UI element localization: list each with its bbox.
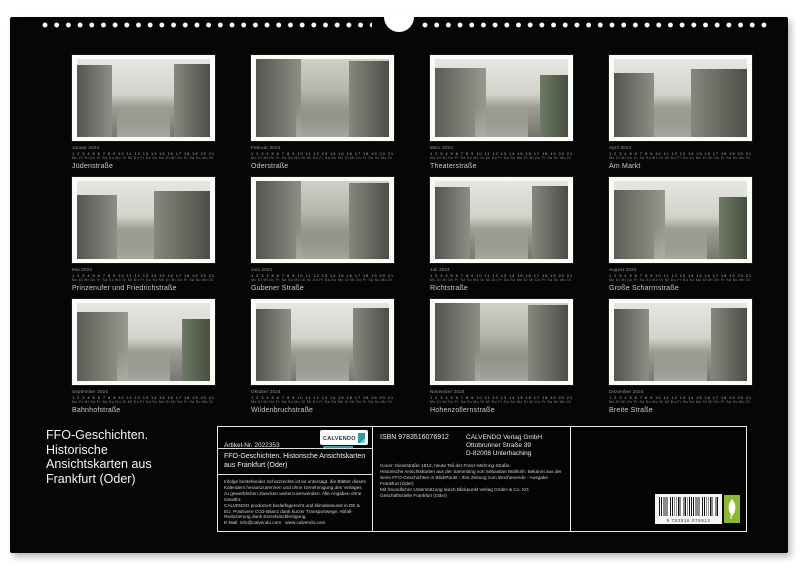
street-shape (117, 350, 170, 381)
postcard-thumbnail (72, 299, 215, 385)
barcode-number: 9 783516 076912 (655, 518, 722, 523)
postcard-caption: Oderstraße (251, 163, 394, 170)
hanger-notch (384, 16, 414, 32)
date-strip-weekdays: Mo Di Mi Do Fr Sa So Mo Di Mi Do Fr Sa S… (609, 278, 752, 282)
date-strip-weekdays: Mo Di Mi Do Fr Sa So Mo Di Mi Do Fr Sa S… (72, 278, 215, 282)
postcard-thumbnail (609, 177, 752, 263)
month-label: Oktober 2024 (251, 389, 394, 394)
postcard-caption: Wildenbruchstraße (251, 407, 394, 414)
postcard-photo (435, 181, 568, 259)
spiral-binding-holes-left (42, 22, 372, 28)
article-number-row: Artikel-Nr. 2022353 CALVENDO (218, 427, 372, 449)
article-number: Artikel-Nr. 2022353 (224, 442, 280, 449)
barcode-bars (659, 497, 718, 516)
cover-credits-text: Cover: Kleiststraße 1912, heute Teil der… (373, 457, 570, 499)
isbn-publisher-row: ISBN 9783516076912 CALVENDO Verlag GmbH … (373, 427, 570, 457)
postcard-caption: Theaterstraße (430, 163, 573, 170)
calendar-month-cell-april: April 2024 1 2 3 4 5 6 7 8 9 10 11 12 13… (609, 55, 752, 170)
postcard-thumbnail (72, 55, 215, 141)
street-shape (296, 106, 349, 137)
date-strip-weekdays: Mo Di Mi Do Fr Sa So Mo Di Mi Do Fr Sa S… (430, 156, 573, 160)
postcard-thumbnail (430, 55, 573, 141)
postcard-photo (77, 181, 210, 259)
calvendo-logo: CALVENDO (320, 430, 368, 445)
legal-text: Infolge bestehender Schutzrechte ist es … (224, 479, 366, 526)
postcard-caption: Bahnhofstraße (72, 407, 215, 414)
date-strip-weekdays: Mo Di Mi Do Fr Sa So Mo Di Mi Do Fr Sa S… (251, 400, 394, 404)
street-shape (117, 228, 170, 259)
isbn-publisher-box: ISBN 9783516076912 CALVENDO Verlag GmbH … (373, 426, 571, 532)
product-title-row: FFO-Geschichten. Historische Ansichtskar… (218, 449, 372, 475)
calendar-sheet-icon (358, 433, 365, 443)
postcard-photo (256, 59, 389, 137)
article-info-box: Artikel-Nr. 2022353 CALVENDO FFO-Geschic… (217, 426, 373, 532)
postcard-photo (614, 59, 747, 137)
isbn-number: ISBN 9783516076912 (380, 434, 466, 457)
date-strip-weekdays: Mo Di Mi Do Fr Sa So Mo Di Mi Do Fr Sa S… (609, 400, 752, 404)
postcard-thumbnail (430, 177, 573, 263)
leaf-icon (726, 498, 738, 520)
postcard-caption: Breite Straße (609, 407, 752, 414)
postcard-thumbnail (251, 299, 394, 385)
street-shape (654, 350, 707, 381)
postcard-photo (77, 59, 210, 137)
postcard-thumbnail (72, 177, 215, 263)
postcard-thumbnail (251, 55, 394, 141)
calvendo-logo-text-wrap: CALVENDO (323, 427, 356, 448)
barcode-box: 9 783516 076912 (571, 426, 747, 532)
street-shape (475, 106, 528, 137)
postcard-thumbnail (609, 55, 752, 141)
calendar-month-cell-november: November 2024 1 2 3 4 5 6 7 8 9 10 11 12… (430, 299, 573, 414)
calendar-back-page: Januar 2024 1 2 3 4 5 6 7 8 9 10 11 12 1… (10, 17, 788, 553)
month-label: Juni 2024 (251, 267, 394, 272)
postcard-photo (256, 303, 389, 381)
month-label: Mai 2024 (72, 267, 215, 272)
date-strip-weekdays: Mo Di Mi Do Fr Sa So Mo Di Mi Do Fr Sa S… (430, 278, 573, 282)
month-label: März 2024 (430, 145, 573, 150)
calendar-month-cell-september: September 2024 1 2 3 4 5 6 7 8 9 10 11 1… (72, 299, 215, 414)
postcard-thumbnail (430, 299, 573, 385)
postcard-photo (435, 59, 568, 137)
postcard-photo (256, 181, 389, 259)
date-strip-weekdays: Mo Di Mi Do Fr Sa So Mo Di Mi Do Fr Sa S… (609, 156, 752, 160)
date-strip-weekdays: Mo Di Mi Do Fr Sa So Mo Di Mi Do Fr Sa S… (251, 278, 394, 282)
postcard-caption: Prinzenufer und Friedrichstraße (72, 285, 215, 292)
street-shape (296, 350, 349, 381)
postcard-caption: Am Markt (609, 163, 752, 170)
spiral-binding-holes-right (422, 22, 768, 28)
month-label: November 2024 (430, 389, 573, 394)
postcard-thumbnail (251, 177, 394, 263)
postcard-photo (435, 303, 568, 381)
postcard-caption: Richtstraße (430, 285, 573, 292)
month-label: Dezember 2024 (609, 389, 752, 394)
calendar-month-cell-october: Oktober 2024 1 2 3 4 5 6 7 8 9 10 11 12 … (251, 299, 394, 414)
postcard-caption: Gubener Straße (251, 285, 394, 292)
calvendo-tagline-bar (323, 446, 353, 448)
publisher-info-boxes: Artikel-Nr. 2022353 CALVENDO FFO-Geschic… (217, 426, 747, 532)
calendar-month-cell-december: Dezember 2024 1 2 3 4 5 6 7 8 9 10 11 12… (609, 299, 752, 414)
street-shape (117, 106, 170, 137)
publisher-address: CALVENDO Verlag GmbH Ottobrunner Straße … (466, 434, 542, 457)
calendar-title: FFO-Geschichten. Historische Ansichtskar… (46, 428, 211, 486)
postcard-photo (77, 303, 210, 381)
street-shape (654, 228, 707, 259)
month-label: September 2024 (72, 389, 215, 394)
postcard-caption: Hohenzollernstraße (430, 407, 573, 414)
calendar-month-cell-january: Januar 2024 1 2 3 4 5 6 7 8 9 10 11 12 1… (72, 55, 215, 170)
month-label: April 2024 (609, 145, 752, 150)
calendar-month-cell-june: Juni 2024 1 2 3 4 5 6 7 8 9 10 11 12 13 … (251, 177, 394, 292)
street-shape (475, 228, 528, 259)
postcard-caption: Jüdenstraße (72, 163, 215, 170)
postcard-photo (614, 181, 747, 259)
date-strip-weekdays: Mo Di Mi Do Fr Sa So Mo Di Mi Do Fr Sa S… (72, 156, 215, 160)
postcard-caption: Große Scharrnstraße (609, 285, 752, 292)
calvendo-wordmark: CALVENDO (323, 436, 356, 442)
street-shape (654, 106, 707, 137)
street-shape (296, 228, 349, 259)
product-title: FFO-Geschichten. Historische Ansichtskar… (224, 453, 366, 470)
calendar-month-cell-july: Juli 2024 1 2 3 4 5 6 7 8 9 10 11 12 13 … (430, 177, 573, 292)
eco-leaf-logo (724, 495, 740, 523)
postcard-grid: Januar 2024 1 2 3 4 5 6 7 8 9 10 11 12 1… (72, 55, 752, 414)
month-label: Januar 2024 (72, 145, 215, 150)
date-strip-weekdays: Mo Di Mi Do Fr Sa So Mo Di Mi Do Fr Sa S… (251, 156, 394, 160)
month-label: Februar 2024 (251, 145, 394, 150)
month-label: Juli 2024 (430, 267, 573, 272)
calendar-month-cell-august: August 2024 1 2 3 4 5 6 7 8 9 10 11 12 1… (609, 177, 752, 292)
postcard-thumbnail (609, 299, 752, 385)
calendar-month-cell-february: Februar 2024 1 2 3 4 5 6 7 8 9 10 11 12 … (251, 55, 394, 170)
date-strip-weekdays: Mo Di Mi Do Fr Sa So Mo Di Mi Do Fr Sa S… (72, 400, 215, 404)
month-label: August 2024 (609, 267, 752, 272)
calendar-month-cell-may: Mai 2024 1 2 3 4 5 6 7 8 9 10 11 12 13 1… (72, 177, 215, 292)
date-strip-weekdays: Mo Di Mi Do Fr Sa So Mo Di Mi Do Fr Sa S… (430, 400, 573, 404)
legal-row: Infolge bestehender Schutzrechte ist es … (218, 475, 372, 530)
street-shape (475, 350, 528, 381)
ean-barcode: 9 783516 076912 (655, 494, 722, 524)
calendar-month-cell-march: März 2024 1 2 3 4 5 6 7 8 9 10 11 12 13 … (430, 55, 573, 170)
postcard-photo (614, 303, 747, 381)
